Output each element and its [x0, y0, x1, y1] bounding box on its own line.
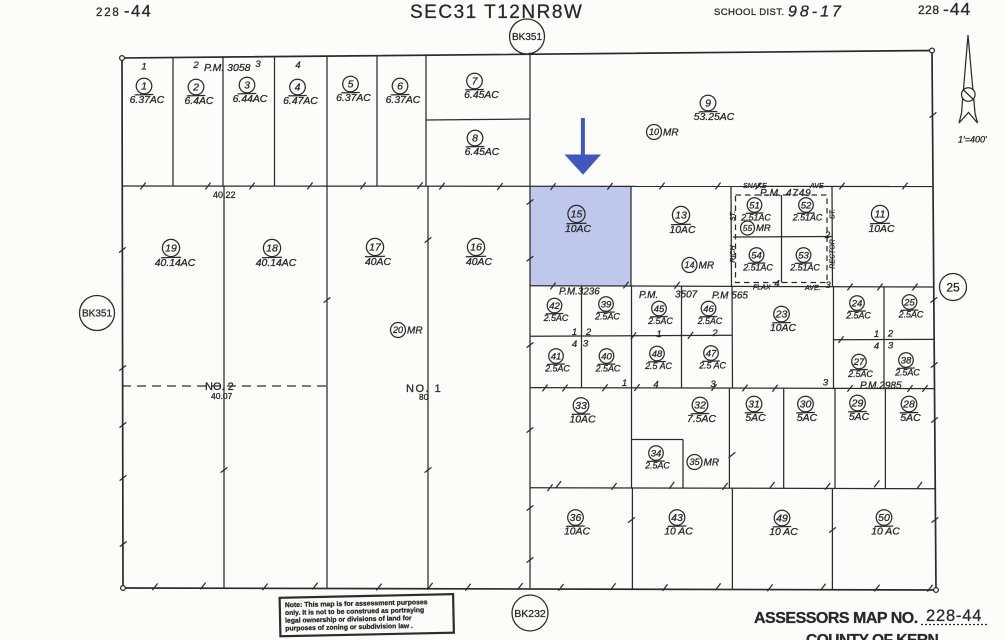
- svg-text:2.5AC: 2.5AC: [595, 363, 621, 373]
- svg-text:RECTOR: RECTOR: [830, 239, 837, 268]
- svg-text:MR: MR: [663, 127, 679, 138]
- svg-text:4: 4: [572, 339, 577, 350]
- svg-text:COUNTY OF KERN: COUNTY OF KERN: [806, 632, 939, 640]
- svg-text:4: 4: [653, 380, 658, 391]
- svg-text:27: 27: [853, 357, 865, 368]
- svg-text:2.5 AC: 2.5 AC: [698, 360, 726, 370]
- svg-text:10 AC: 10 AC: [871, 527, 900, 538]
- svg-text:2.5AC: 2.5AC: [845, 310, 871, 320]
- svg-text:4: 4: [295, 60, 300, 71]
- svg-text:228: 228: [96, 7, 121, 19]
- svg-text:2.5 AC: 2.5 AC: [644, 361, 672, 371]
- svg-text:30: 30: [800, 399, 812, 411]
- svg-text:P.M 565: P.M 565: [712, 291, 748, 302]
- svg-text:13: 13: [675, 210, 687, 222]
- svg-text:4: 4: [295, 82, 301, 94]
- svg-text:P.M.: P.M.: [639, 290, 658, 301]
- svg-text:6.47AC: 6.47AC: [283, 96, 318, 107]
- svg-text:32: 32: [694, 400, 706, 412]
- svg-text:10 AC: 10 AC: [664, 527, 693, 538]
- svg-text:1: 1: [572, 327, 577, 338]
- svg-text:33: 33: [575, 400, 587, 412]
- svg-text:19: 19: [165, 243, 177, 255]
- svg-text:228-44: 228-44: [926, 607, 982, 625]
- svg-text:ST.: ST.: [830, 209, 837, 219]
- svg-text:2.51AC: 2.51AC: [742, 262, 773, 272]
- svg-text:5AC: 5AC: [900, 413, 921, 424]
- svg-text:25: 25: [903, 297, 915, 308]
- svg-text:50: 50: [878, 512, 890, 524]
- svg-text:6.44AC: 6.44AC: [233, 94, 268, 105]
- svg-text:49: 49: [776, 513, 788, 525]
- svg-text:2: 2: [192, 82, 199, 94]
- svg-text:-44: -44: [124, 3, 152, 21]
- svg-text:BK351: BK351: [512, 32, 542, 43]
- svg-text:80: 80: [419, 392, 429, 402]
- svg-text:45: 45: [654, 304, 665, 315]
- svg-text:10 AC: 10 AC: [769, 527, 798, 538]
- svg-text:53.25AC: 53.25AC: [694, 112, 735, 123]
- svg-text:17: 17: [369, 242, 382, 254]
- svg-text:10AC: 10AC: [564, 527, 590, 538]
- svg-text:2.5AC: 2.5AC: [544, 363, 570, 373]
- svg-text:43: 43: [671, 512, 683, 524]
- svg-text:48: 48: [652, 349, 663, 360]
- svg-text:6.4AC: 6.4AC: [185, 96, 214, 107]
- svg-text:P.M.2985: P.M.2985: [860, 381, 902, 392]
- svg-text:AVE: AVE: [809, 183, 824, 190]
- svg-text:35: 35: [689, 457, 700, 467]
- svg-text:10AC: 10AC: [570, 415, 596, 426]
- svg-text:40.22: 40.22: [213, 190, 236, 200]
- svg-text:2.5AC: 2.5AC: [594, 311, 620, 321]
- svg-text:3: 3: [825, 280, 831, 291]
- svg-text:6.37AC: 6.37AC: [386, 95, 421, 106]
- svg-text:2.5AC: 2.5AC: [543, 313, 569, 323]
- svg-text:40: 40: [601, 351, 612, 362]
- svg-text:SEC31 T12NR8W: SEC31 T12NR8W: [410, 2, 583, 23]
- svg-text:4: 4: [874, 341, 879, 352]
- svg-text:2.5AC: 2.5AC: [647, 316, 673, 326]
- svg-text:53: 53: [798, 250, 809, 261]
- svg-text:10AC: 10AC: [565, 224, 591, 235]
- svg-text:1: 1: [874, 329, 879, 340]
- svg-text:MR: MR: [756, 223, 771, 234]
- svg-text:10AC: 10AC: [670, 225, 696, 236]
- svg-text:39: 39: [601, 299, 612, 310]
- svg-text:BK351: BK351: [82, 309, 112, 320]
- svg-text:1: 1: [622, 378, 627, 389]
- svg-text:1: 1: [141, 81, 147, 93]
- svg-text:40.14AC: 40.14AC: [155, 258, 196, 269]
- svg-text:18: 18: [266, 243, 278, 255]
- svg-text:10AC: 10AC: [869, 224, 895, 235]
- svg-text:ASSESSORS MAP NO.: ASSESSORS MAP NO.: [754, 610, 918, 627]
- svg-text:25: 25: [946, 281, 960, 295]
- svg-text:2: 2: [711, 328, 718, 339]
- svg-text:3507: 3507: [675, 290, 698, 301]
- svg-text:47: 47: [706, 348, 717, 359]
- svg-text:34: 34: [651, 448, 662, 459]
- svg-text:38: 38: [901, 355, 912, 366]
- svg-text:11: 11: [875, 209, 886, 221]
- svg-text:P.M. 4749: P.M. 4749: [760, 188, 812, 199]
- svg-text:2: 2: [192, 60, 199, 71]
- svg-text:54: 54: [751, 250, 762, 261]
- svg-text:36: 36: [570, 512, 582, 524]
- svg-text:51: 51: [749, 200, 760, 211]
- svg-text:40.14AC: 40.14AC: [256, 258, 297, 269]
- svg-text:1: 1: [141, 62, 146, 73]
- svg-text:10: 10: [649, 127, 659, 137]
- svg-text:6.37AC: 6.37AC: [336, 93, 371, 104]
- svg-text:9: 9: [705, 98, 711, 110]
- svg-text:40AC: 40AC: [466, 257, 492, 268]
- svg-text:3: 3: [583, 339, 589, 350]
- svg-text:31: 31: [748, 399, 760, 411]
- svg-text:3: 3: [888, 341, 894, 352]
- svg-text:P.M. 3058: P.M. 3058: [204, 62, 251, 74]
- svg-text:46: 46: [703, 304, 714, 315]
- svg-text:BK232: BK232: [514, 608, 546, 620]
- svg-text:5: 5: [348, 79, 354, 91]
- svg-text:2.5AC: 2.5AC: [644, 460, 670, 470]
- svg-text:20: 20: [392, 325, 403, 335]
- svg-text:5AC: 5AC: [797, 413, 818, 424]
- svg-text:SNAKE: SNAKE: [743, 183, 767, 190]
- svg-text:3: 3: [255, 59, 261, 70]
- svg-text:40AC: 40AC: [365, 257, 391, 268]
- svg-text:2.5AC: 2.5AC: [697, 316, 723, 326]
- svg-text:2.51AC: 2.51AC: [792, 212, 823, 222]
- svg-text:MR: MR: [407, 325, 423, 336]
- svg-text:4: 4: [774, 279, 779, 290]
- svg-text:5AC: 5AC: [745, 413, 766, 424]
- svg-text:2.5AC: 2.5AC: [894, 367, 920, 377]
- svg-text:14: 14: [684, 260, 694, 270]
- svg-text:29: 29: [851, 398, 864, 410]
- svg-text:AVE.: AVE.: [804, 285, 821, 292]
- svg-text:55: 55: [743, 223, 753, 233]
- svg-text:2.5AC: 2.5AC: [898, 309, 924, 319]
- svg-text:2.51AC: 2.51AC: [789, 262, 820, 272]
- svg-text:SCHOOL DIST.: SCHOOL DIST.: [714, 7, 784, 18]
- svg-text:1′=400′: 1′=400′: [958, 135, 987, 145]
- svg-text:1: 1: [656, 329, 661, 340]
- svg-text:P.M.3236: P.M.3236: [559, 287, 600, 298]
- svg-text:2: 2: [585, 327, 592, 338]
- svg-text:28: 28: [902, 399, 915, 411]
- svg-text:228: 228: [918, 3, 940, 17]
- svg-text:16: 16: [470, 242, 482, 254]
- svg-text:8: 8: [472, 133, 478, 145]
- svg-text:6.37AC: 6.37AC: [130, 95, 165, 106]
- svg-text:3: 3: [710, 379, 716, 390]
- svg-text:15: 15: [571, 209, 583, 221]
- svg-text:6.45AC: 6.45AC: [464, 90, 499, 101]
- svg-text:10AC: 10AC: [770, 323, 796, 334]
- svg-text:6: 6: [397, 81, 403, 93]
- svg-text:3: 3: [823, 378, 829, 389]
- svg-text:ST.: ST.: [730, 211, 737, 221]
- svg-text:98-17: 98-17: [788, 4, 844, 21]
- svg-text:41: 41: [551, 351, 562, 362]
- svg-text:23: 23: [775, 309, 788, 321]
- svg-text:MR: MR: [699, 260, 715, 271]
- svg-text:5AC: 5AC: [849, 412, 870, 423]
- svg-text:2.5AC: 2.5AC: [847, 369, 873, 379]
- svg-text:3: 3: [244, 80, 250, 92]
- svg-text:7.5AC: 7.5AC: [687, 414, 716, 425]
- svg-text:6.45AC: 6.45AC: [465, 147, 500, 158]
- svg-text:2: 2: [887, 329, 894, 340]
- svg-text:24: 24: [851, 298, 863, 309]
- svg-text:FLAX: FLAX: [753, 284, 771, 291]
- svg-text:MR: MR: [704, 457, 720, 468]
- svg-text:52: 52: [801, 200, 812, 211]
- svg-text:RICH: RICH: [730, 245, 737, 263]
- svg-text:42: 42: [549, 301, 560, 312]
- svg-text:-44: -44: [943, 0, 971, 19]
- svg-text:40.07: 40.07: [211, 391, 233, 401]
